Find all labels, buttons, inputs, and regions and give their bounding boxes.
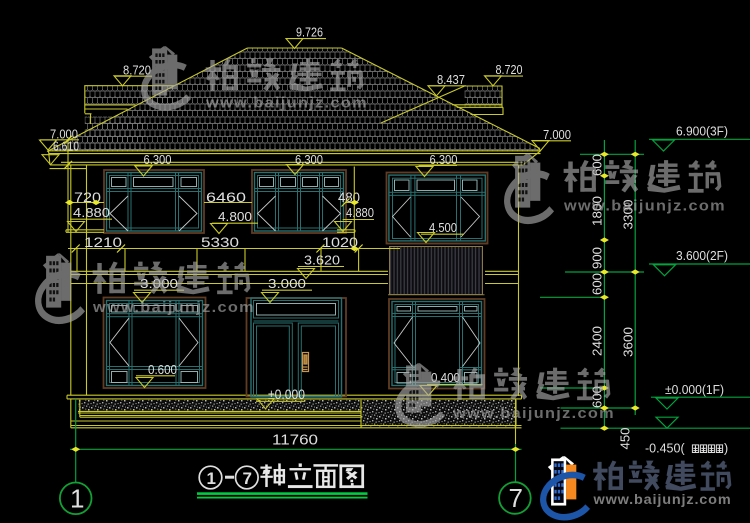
svg-text:8.437: 8.437 bbox=[437, 72, 465, 87]
svg-text:5330: 5330 bbox=[201, 235, 239, 250]
svg-text:11760: 11760 bbox=[272, 433, 318, 449]
svg-text:-0.450(: -0.450( bbox=[645, 441, 685, 455]
svg-text:450: 450 bbox=[619, 427, 633, 449]
svg-text:www.baijunjz.com: www.baijunjz.com bbox=[205, 96, 368, 112]
svg-text:7.000: 7.000 bbox=[543, 127, 571, 142]
svg-text:www.baijunjz.com: www.baijunjz.com bbox=[452, 406, 615, 422]
svg-text:3.000: 3.000 bbox=[268, 276, 306, 291]
svg-text:4.800: 4.800 bbox=[218, 209, 252, 224]
svg-text:www.baijunjz.com: www.baijunjz.com bbox=[92, 300, 255, 316]
svg-text:900: 900 bbox=[591, 247, 605, 269]
svg-text:0.600: 0.600 bbox=[148, 362, 177, 377]
svg-text:6.900(3F): 6.900(3F) bbox=[676, 125, 728, 139]
svg-text:6.300: 6.300 bbox=[144, 152, 172, 167]
svg-text:8.720: 8.720 bbox=[496, 62, 523, 77]
svg-text:1: 1 bbox=[70, 484, 84, 514]
svg-text:3600: 3600 bbox=[622, 327, 636, 357]
svg-text:6.300: 6.300 bbox=[430, 152, 458, 167]
svg-text:4.880: 4.880 bbox=[346, 205, 374, 220]
svg-text:9.726: 9.726 bbox=[296, 25, 323, 40]
svg-text:1020: 1020 bbox=[322, 235, 358, 250]
svg-text:www.baijunjz.com: www.baijunjz.com bbox=[592, 491, 731, 507]
svg-text:7: 7 bbox=[509, 483, 523, 513]
svg-text:2400: 2400 bbox=[591, 326, 605, 356]
svg-text:7: 7 bbox=[243, 469, 252, 488]
svg-text:3.600(2F): 3.600(2F) bbox=[676, 249, 728, 263]
svg-text:4.880: 4.880 bbox=[73, 205, 110, 220]
svg-text:±0.000(1F): ±0.000(1F) bbox=[665, 383, 724, 397]
svg-text:1210: 1210 bbox=[84, 235, 122, 250]
svg-text:600: 600 bbox=[591, 273, 605, 295]
svg-text:3.620: 3.620 bbox=[304, 253, 340, 268]
svg-text:1: 1 bbox=[207, 469, 216, 488]
svg-text:): ) bbox=[724, 441, 728, 455]
svg-text:www.baijunjz.com: www.baijunjz.com bbox=[563, 199, 726, 215]
